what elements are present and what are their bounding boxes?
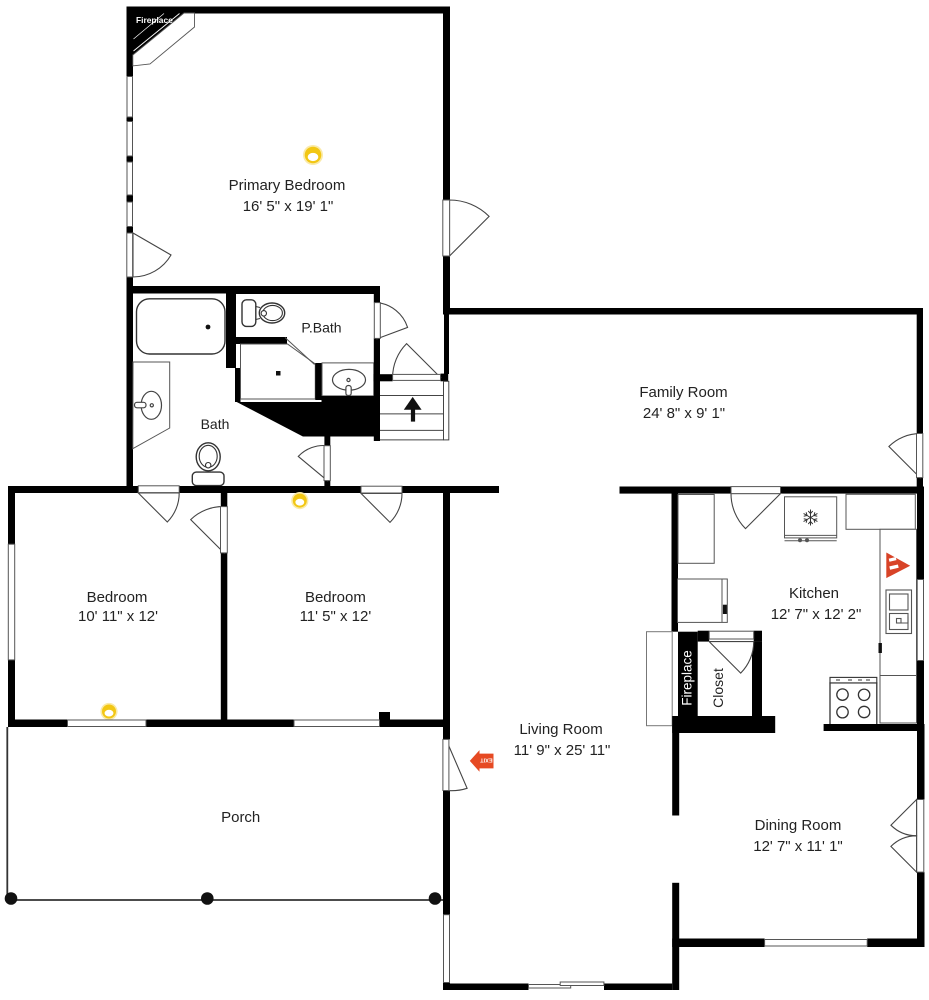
svg-text:10' 11" x 12': 10' 11" x 12' — [78, 608, 158, 625]
svg-text:Family Room: Family Room — [639, 384, 727, 401]
svg-text:24' 8" x 9' 1": 24' 8" x 9' 1" — [643, 405, 725, 422]
svg-text:Porch: Porch — [221, 809, 260, 826]
svg-text:11' 5" x 12': 11' 5" x 12' — [300, 608, 372, 625]
svg-text:Fireplace: Fireplace — [680, 650, 695, 706]
svg-text:Dining Room: Dining Room — [755, 817, 842, 834]
svg-text:P.Bath: P.Bath — [301, 320, 341, 336]
svg-text:Kitchen: Kitchen — [789, 585, 839, 602]
svg-text:Living Room: Living Room — [519, 721, 602, 738]
svg-text:12' 7" x 11' 1": 12' 7" x 11' 1" — [753, 838, 843, 855]
svg-text:Bath: Bath — [201, 416, 230, 432]
svg-text:11' 9" x 25' 11": 11' 9" x 25' 11" — [514, 742, 611, 759]
svg-text:Bedroom: Bedroom — [87, 589, 148, 606]
svg-text:12' 7" x 12' 2": 12' 7" x 12' 2" — [771, 606, 862, 623]
svg-text:16' 5" x 19' 1": 16' 5" x 19' 1" — [243, 198, 334, 215]
svg-text:Fireplace: Fireplace — [136, 15, 173, 25]
svg-text:Closet: Closet — [710, 668, 726, 708]
svg-text:Bedroom: Bedroom — [305, 589, 366, 606]
svg-text:Primary Bedroom: Primary Bedroom — [229, 177, 346, 194]
svg-text:EXIT: EXIT — [480, 757, 493, 763]
